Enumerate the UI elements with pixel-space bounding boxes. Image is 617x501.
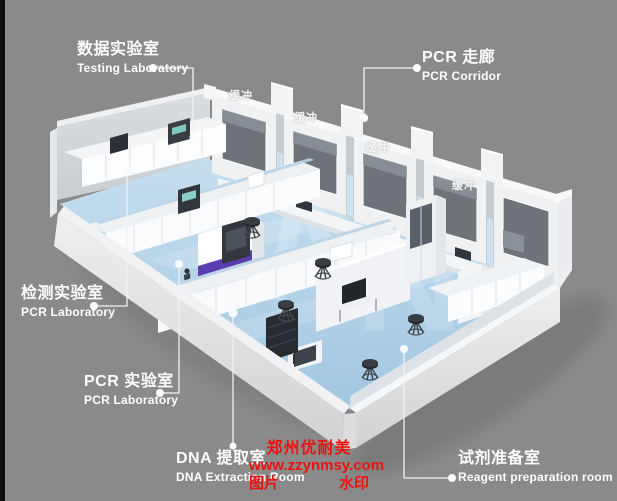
label-reagent-preparation-room-zh: 试剂准备室 bbox=[458, 451, 613, 468]
label-pcr-laboratory-en: PCR Laboratory bbox=[84, 394, 178, 407]
label-pcr-corridor-en: PCR Corridor bbox=[422, 70, 501, 83]
label-reagent-preparation-room: 试剂准备室 Reagent preparation room bbox=[458, 451, 613, 483]
watermark-company: 郑州优耐美 bbox=[249, 441, 369, 458]
label-detection-laboratory: 检测实验室 PCR Laboratory bbox=[21, 286, 115, 318]
label-testing-laboratory-en: Testing Laboratory bbox=[77, 62, 188, 75]
label-testing-laboratory-zh: 数据实验室 bbox=[77, 42, 188, 59]
screenshot-canvas: W N bbox=[0, 0, 617, 501]
watermark-url: www.zzynmsy.com bbox=[249, 458, 369, 474]
label-reagent-preparation-room-en: Reagent preparation room bbox=[458, 471, 613, 484]
label-detection-laboratory-zh: 检测实验室 bbox=[21, 286, 115, 303]
watermark-left: 图片 bbox=[249, 476, 279, 492]
leader-pcr-corridor bbox=[364, 68, 417, 118]
buffer-room-tag-1: 缓冲 bbox=[229, 87, 253, 103]
watermark-row: 图片 水印 bbox=[249, 476, 369, 492]
buffer-room-tag-2: 缓冲 bbox=[294, 109, 318, 125]
label-pcr-laboratory-zh: PCR 实验室 bbox=[84, 374, 178, 391]
watermark-right: 水印 bbox=[339, 476, 369, 492]
lab-3d-render: W N bbox=[0, 0, 617, 501]
label-detection-laboratory-en: PCR Laboratory bbox=[21, 306, 115, 319]
tall-cabinet bbox=[406, 195, 446, 285]
site-watermark: 郑州优耐美 www.zzynmsy.com 图片 水印 bbox=[249, 441, 369, 492]
label-testing-laboratory: 数据实验室 Testing Laboratory bbox=[77, 42, 188, 74]
left-border-strip bbox=[0, 0, 5, 501]
label-pcr-laboratory: PCR 实验室 PCR Laboratory bbox=[84, 374, 178, 406]
label-pcr-corridor-zh: PCR 走廊 bbox=[422, 50, 501, 67]
buffer-room-tag-4: 缓冲 bbox=[452, 177, 476, 193]
label-pcr-corridor: PCR 走廊 PCR Corridor bbox=[422, 50, 501, 82]
buffer-room-tag-3: 缓冲 bbox=[366, 139, 390, 155]
